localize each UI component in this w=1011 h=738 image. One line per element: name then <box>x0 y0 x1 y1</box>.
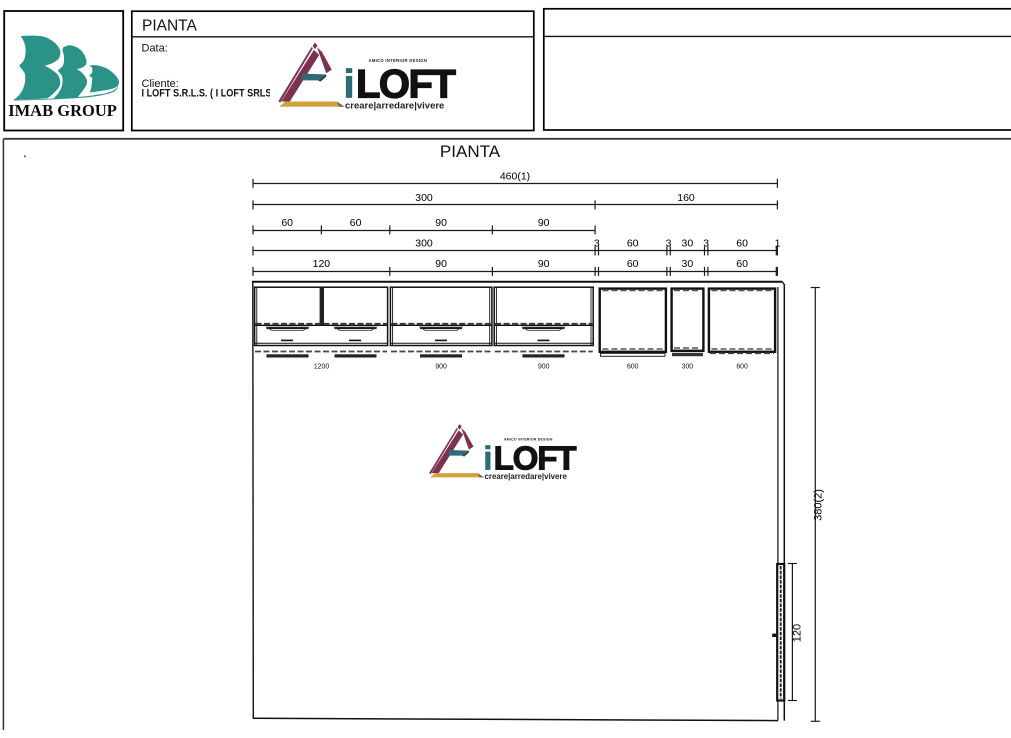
svg-text:90: 90 <box>538 217 550 229</box>
svg-text:3: 3 <box>666 238 672 250</box>
svg-text:I LOFT S.R.L.S. ( I LOFT SRLS: I LOFT S.R.L.S. ( I LOFT SRLS <box>142 88 272 100</box>
svg-text:30: 30 <box>682 238 694 250</box>
svg-text:60: 60 <box>736 258 748 270</box>
svg-text:IMAB GROUP: IMAB GROUP <box>8 101 117 120</box>
svg-text:30: 30 <box>682 258 694 270</box>
svg-text:60: 60 <box>627 258 639 270</box>
svg-text:300: 300 <box>415 192 433 204</box>
svg-text:1: 1 <box>775 238 781 250</box>
svg-text:600: 600 <box>627 364 639 371</box>
svg-text:60: 60 <box>350 217 362 229</box>
svg-text:300: 300 <box>415 238 433 250</box>
svg-text:60: 60 <box>281 217 293 229</box>
svg-text:90: 90 <box>435 217 447 229</box>
svg-text:1200: 1200 <box>314 364 329 371</box>
svg-text:3: 3 <box>703 238 709 250</box>
svg-text:60: 60 <box>627 238 639 250</box>
svg-text:300: 300 <box>682 364 694 371</box>
svg-text:380(2): 380(2) <box>812 489 824 521</box>
svg-text:160: 160 <box>677 192 695 204</box>
svg-text:Data:: Data: <box>142 43 168 55</box>
svg-text:3: 3 <box>594 238 600 250</box>
svg-text:120: 120 <box>791 624 803 642</box>
svg-text:PIANTA: PIANTA <box>440 142 501 161</box>
svg-text:PIANTA: PIANTA <box>142 18 197 35</box>
svg-text:60: 60 <box>736 238 748 250</box>
svg-text:90: 90 <box>435 258 447 270</box>
svg-text:460(1): 460(1) <box>500 170 530 182</box>
svg-text:600: 600 <box>736 364 748 371</box>
svg-text:900: 900 <box>435 364 447 371</box>
svg-text:900: 900 <box>538 364 550 371</box>
svg-text:120: 120 <box>313 258 331 270</box>
svg-text:90: 90 <box>538 258 550 270</box>
